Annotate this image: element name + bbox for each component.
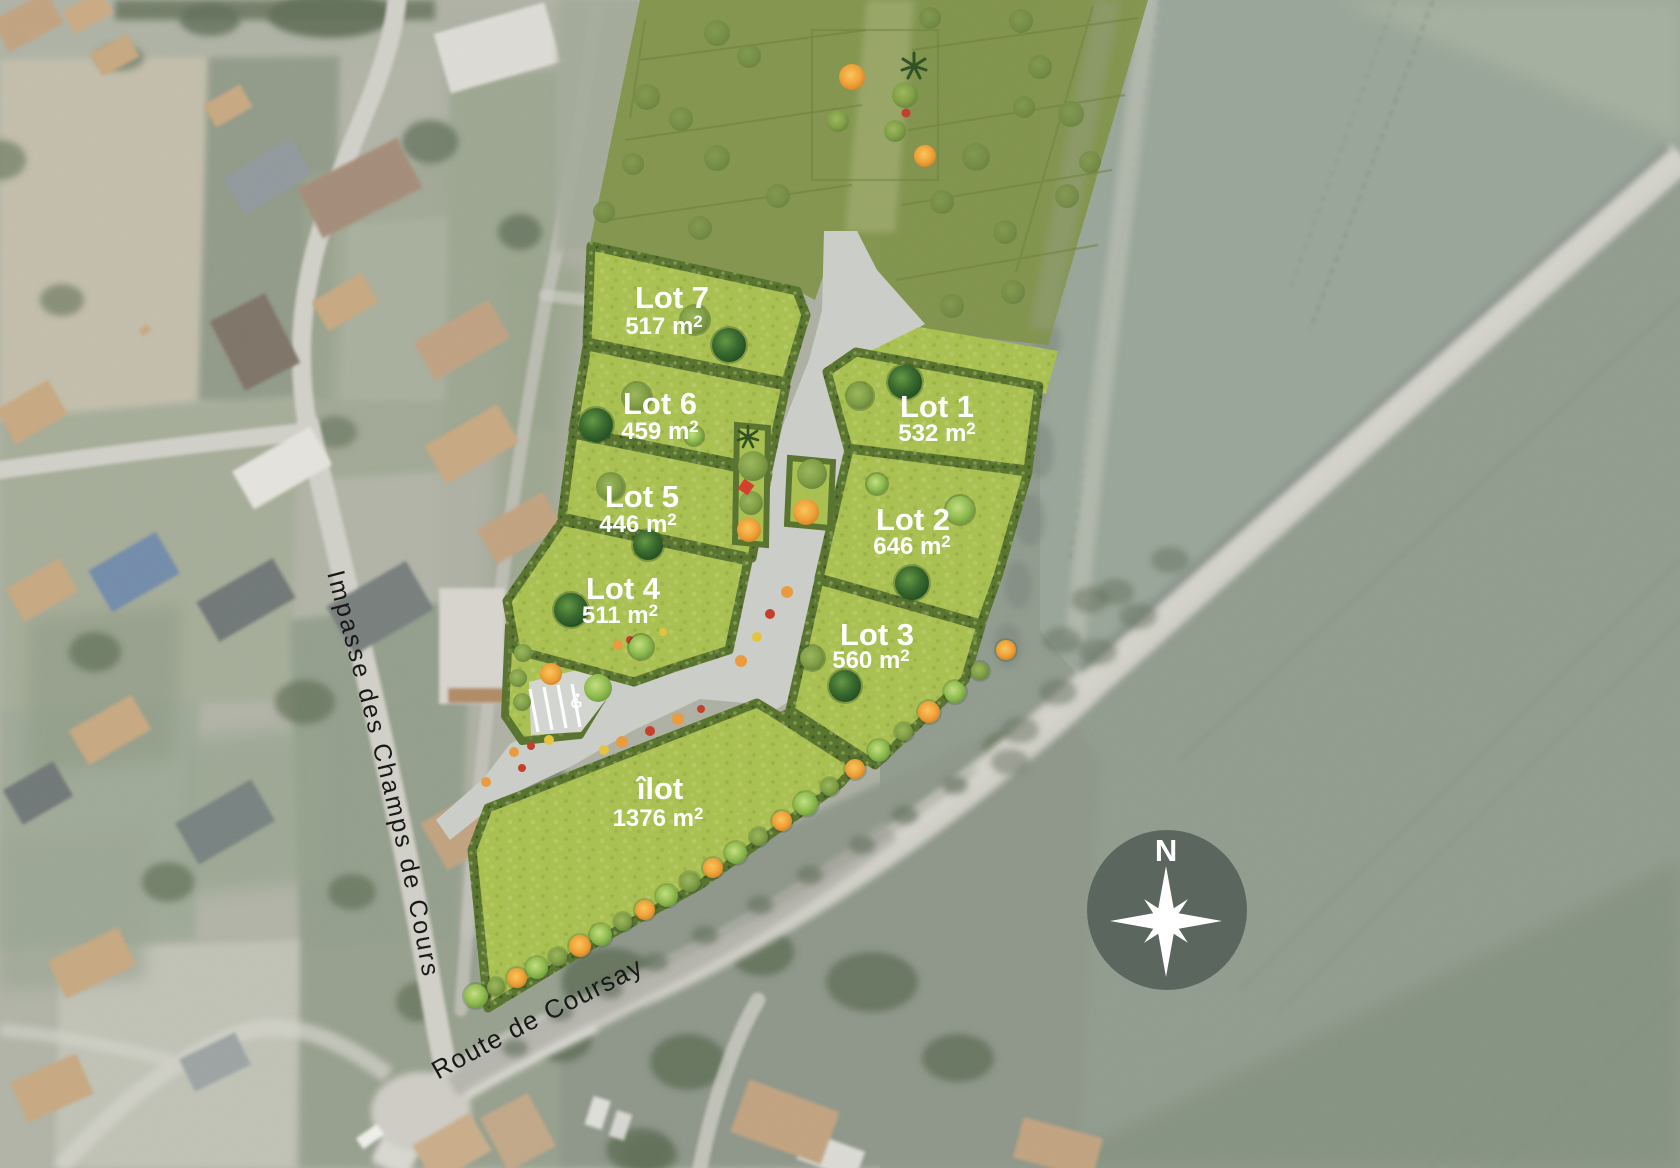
svg-text:N: N xyxy=(1155,833,1177,868)
